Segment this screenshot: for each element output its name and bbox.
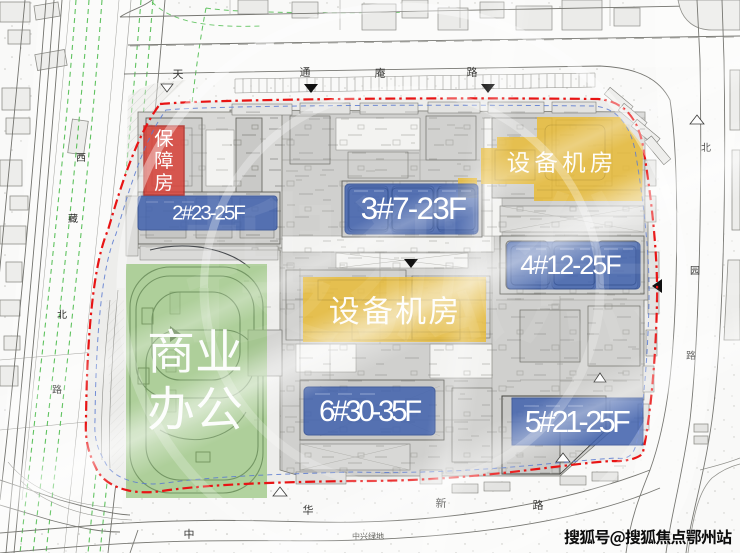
svg-text:6#30-35F: 6#30-35F — [319, 395, 421, 428]
